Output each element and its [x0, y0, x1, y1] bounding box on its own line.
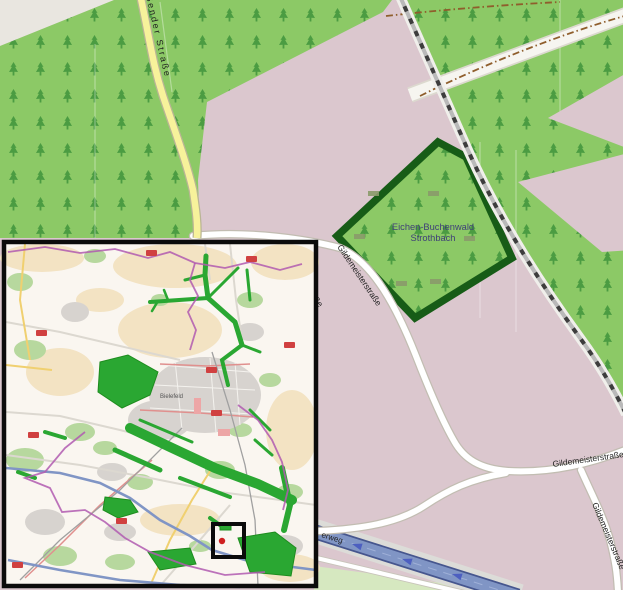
main-map[interactable]: Eichen-Buchenwald Strothbach Sender Stra… [0, 0, 623, 590]
inset-urban-red-block2 [218, 429, 230, 436]
map-viewport[interactable]: Eichen-Buchenwald Strothbach Sender Stra… [0, 0, 623, 590]
reserve-name-line2: Strothbach [411, 233, 456, 243]
inset-overview-map[interactable]: Bielefeld [0, 242, 320, 587]
inset-city-label: Bielefeld [160, 394, 183, 400]
reserve-name-line1: Eichen-Buchenwald [392, 222, 474, 232]
location-dot [219, 538, 225, 544]
inset-urban-red-block [194, 398, 201, 414]
